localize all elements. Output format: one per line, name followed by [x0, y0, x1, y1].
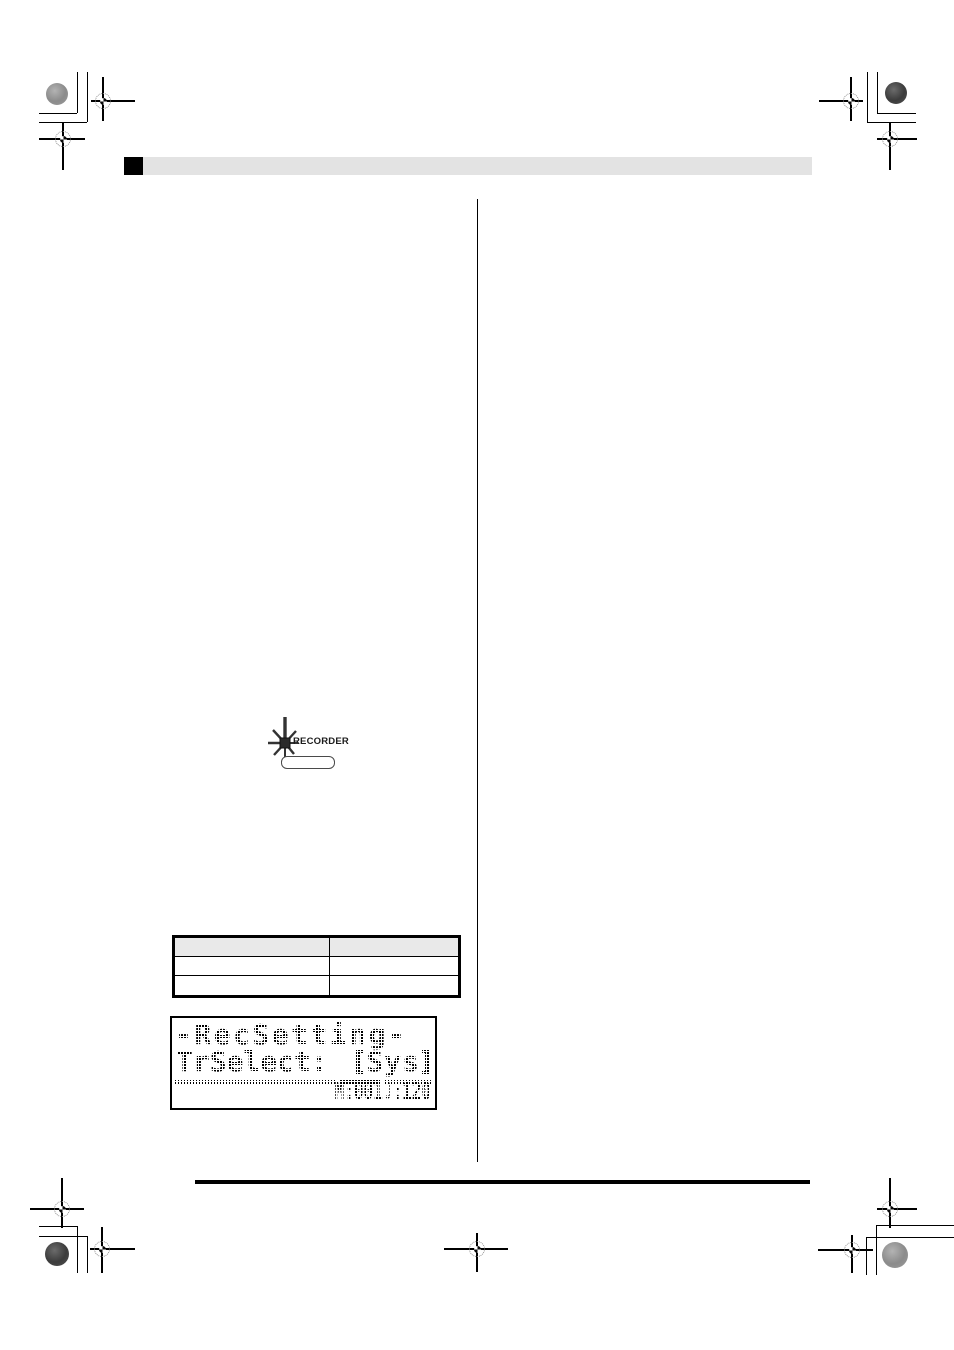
recorder-label: RECORDER	[293, 736, 349, 747]
crop-mark	[866, 1237, 954, 1238]
manual-page: RECORDER -RecSetting- TrSelect: Sys M:00…	[0, 0, 954, 1350]
column-divider	[477, 199, 478, 1162]
lcd-value-text: Sys	[366, 1049, 420, 1075]
color-target-top-left	[46, 83, 68, 105]
color-target-bottom-right	[882, 1242, 908, 1268]
table-header-cell	[175, 938, 330, 957]
crop-mark	[877, 113, 916, 114]
crop-mark	[877, 72, 878, 113]
lcd-status-line: M:001♩:120	[335, 1077, 431, 1105]
crop-mark	[39, 122, 87, 123]
lcd-parameter-label: TrSelect:	[176, 1049, 328, 1075]
quarter-note-icon: ♩	[383, 1077, 393, 1105]
color-target-top-right	[885, 82, 907, 104]
footer-rule	[195, 1180, 810, 1184]
lcd-tempo-value: :120	[392, 1077, 431, 1105]
color-target-bottom-left	[45, 1242, 69, 1266]
crop-mark	[39, 1226, 77, 1227]
table-cell	[175, 976, 330, 995]
right-bracket-icon	[422, 1050, 430, 1074]
lcd-separator	[174, 1080, 336, 1084]
crop-mark	[87, 1236, 88, 1273]
crop-mark	[77, 1226, 78, 1273]
lcd-parameter-value: Sys	[356, 1049, 430, 1075]
crop-mark	[87, 72, 88, 122]
crop-mark	[39, 1236, 87, 1237]
crop-mark	[867, 122, 916, 123]
table-cell	[330, 976, 458, 995]
crop-mark	[876, 1225, 877, 1275]
crop-mark	[867, 72, 868, 122]
section-header-bar	[143, 157, 812, 175]
table-header-cell	[330, 938, 458, 957]
section-number-block	[124, 157, 143, 175]
crop-mark	[77, 72, 78, 113]
crop-mark	[39, 113, 77, 114]
table-cell	[330, 957, 458, 976]
reference-table	[172, 935, 461, 998]
crop-mark	[876, 1225, 954, 1226]
lcd-measure-value: M:001	[335, 1077, 383, 1105]
recorder-button	[281, 756, 335, 769]
table-cell	[175, 957, 330, 976]
crop-mark	[866, 1237, 867, 1275]
lcd-display: -RecSetting- TrSelect: Sys M:001♩:120	[170, 1016, 437, 1110]
left-bracket-icon	[356, 1050, 364, 1074]
